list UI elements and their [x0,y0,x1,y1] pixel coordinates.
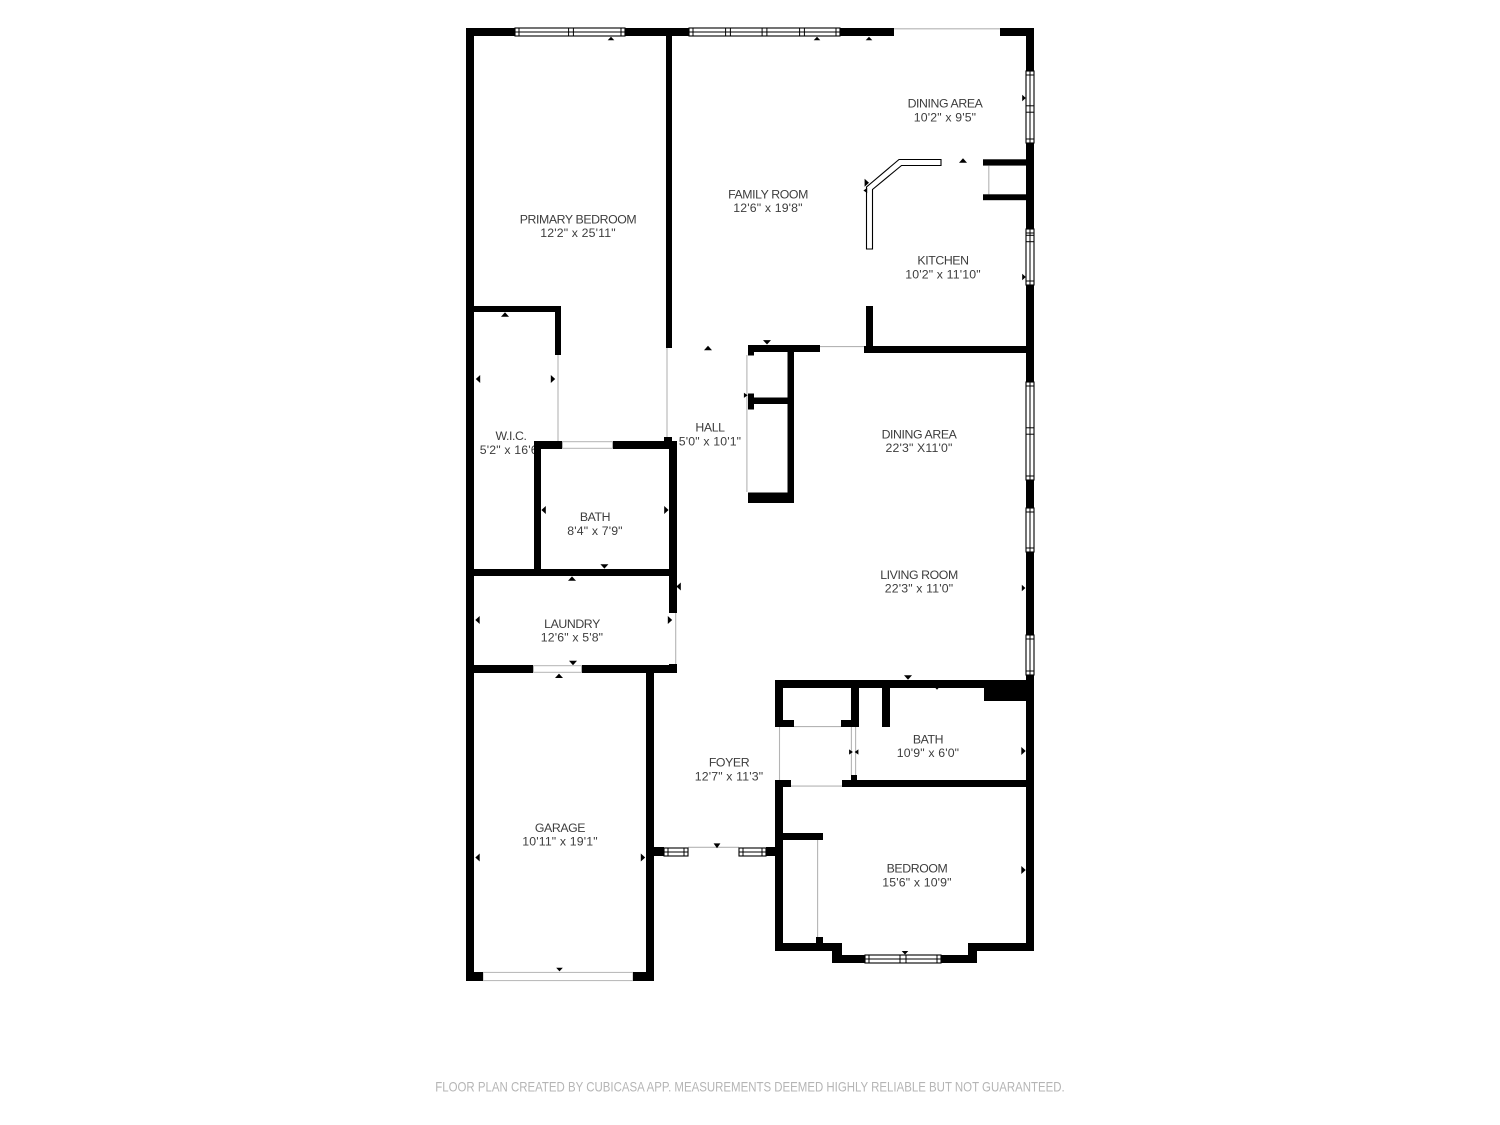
svg-text:10'2" x 9'5": 10'2" x 9'5" [914,110,976,124]
svg-text:10'11" x 19'1": 10'11" x 19'1" [522,835,597,849]
svg-text:LIVING ROOM: LIVING ROOM [880,568,958,582]
svg-text:12'6" x 5'8": 12'6" x 5'8" [541,631,603,645]
svg-text:LAUNDRY: LAUNDRY [544,617,600,631]
svg-text:KITCHEN: KITCHEN [917,254,968,268]
svg-text:BATH: BATH [580,510,610,524]
svg-text:BEDROOM: BEDROOM [887,862,948,876]
svg-text:22'3" x 11'0": 22'3" x 11'0" [885,582,953,596]
svg-text:10'2" x 11'10": 10'2" x 11'10" [905,267,980,281]
svg-text:FOYER: FOYER [709,756,750,770]
svg-text:DINING AREA: DINING AREA [882,427,958,441]
svg-text:PRIMARY BEDROOM: PRIMARY BEDROOM [520,212,637,226]
svg-text:12'2" x 25'11": 12'2" x 25'11" [540,226,615,240]
svg-text:HALL: HALL [695,421,725,435]
svg-text:22'3" X11'0": 22'3" X11'0" [886,441,953,455]
svg-text:FLOOR PLAN CREATED BY CUBICASA: FLOOR PLAN CREATED BY CUBICASA APP. MEAS… [435,1080,1064,1095]
svg-text:15'6" x 10'9": 15'6" x 10'9" [882,875,951,889]
svg-text:DINING AREA: DINING AREA [908,97,984,111]
svg-text:FAMILY ROOM: FAMILY ROOM [728,187,808,201]
svg-text:5'2" x 16'6": 5'2" x 16'6" [480,443,542,457]
svg-text:5'0" x 10'1": 5'0" x 10'1" [679,434,741,448]
svg-text:12'6" x 19'8": 12'6" x 19'8" [733,201,802,215]
svg-text:BATH: BATH [913,732,943,746]
svg-text:10'9" x 6'0": 10'9" x 6'0" [897,746,959,760]
svg-text:8'4" x 7'9": 8'4" x 7'9" [567,524,622,538]
svg-text:GARAGE: GARAGE [535,821,585,835]
svg-text:12'7" x 11'3": 12'7" x 11'3" [695,769,763,783]
svg-text:W.I.C.: W.I.C. [495,429,526,443]
